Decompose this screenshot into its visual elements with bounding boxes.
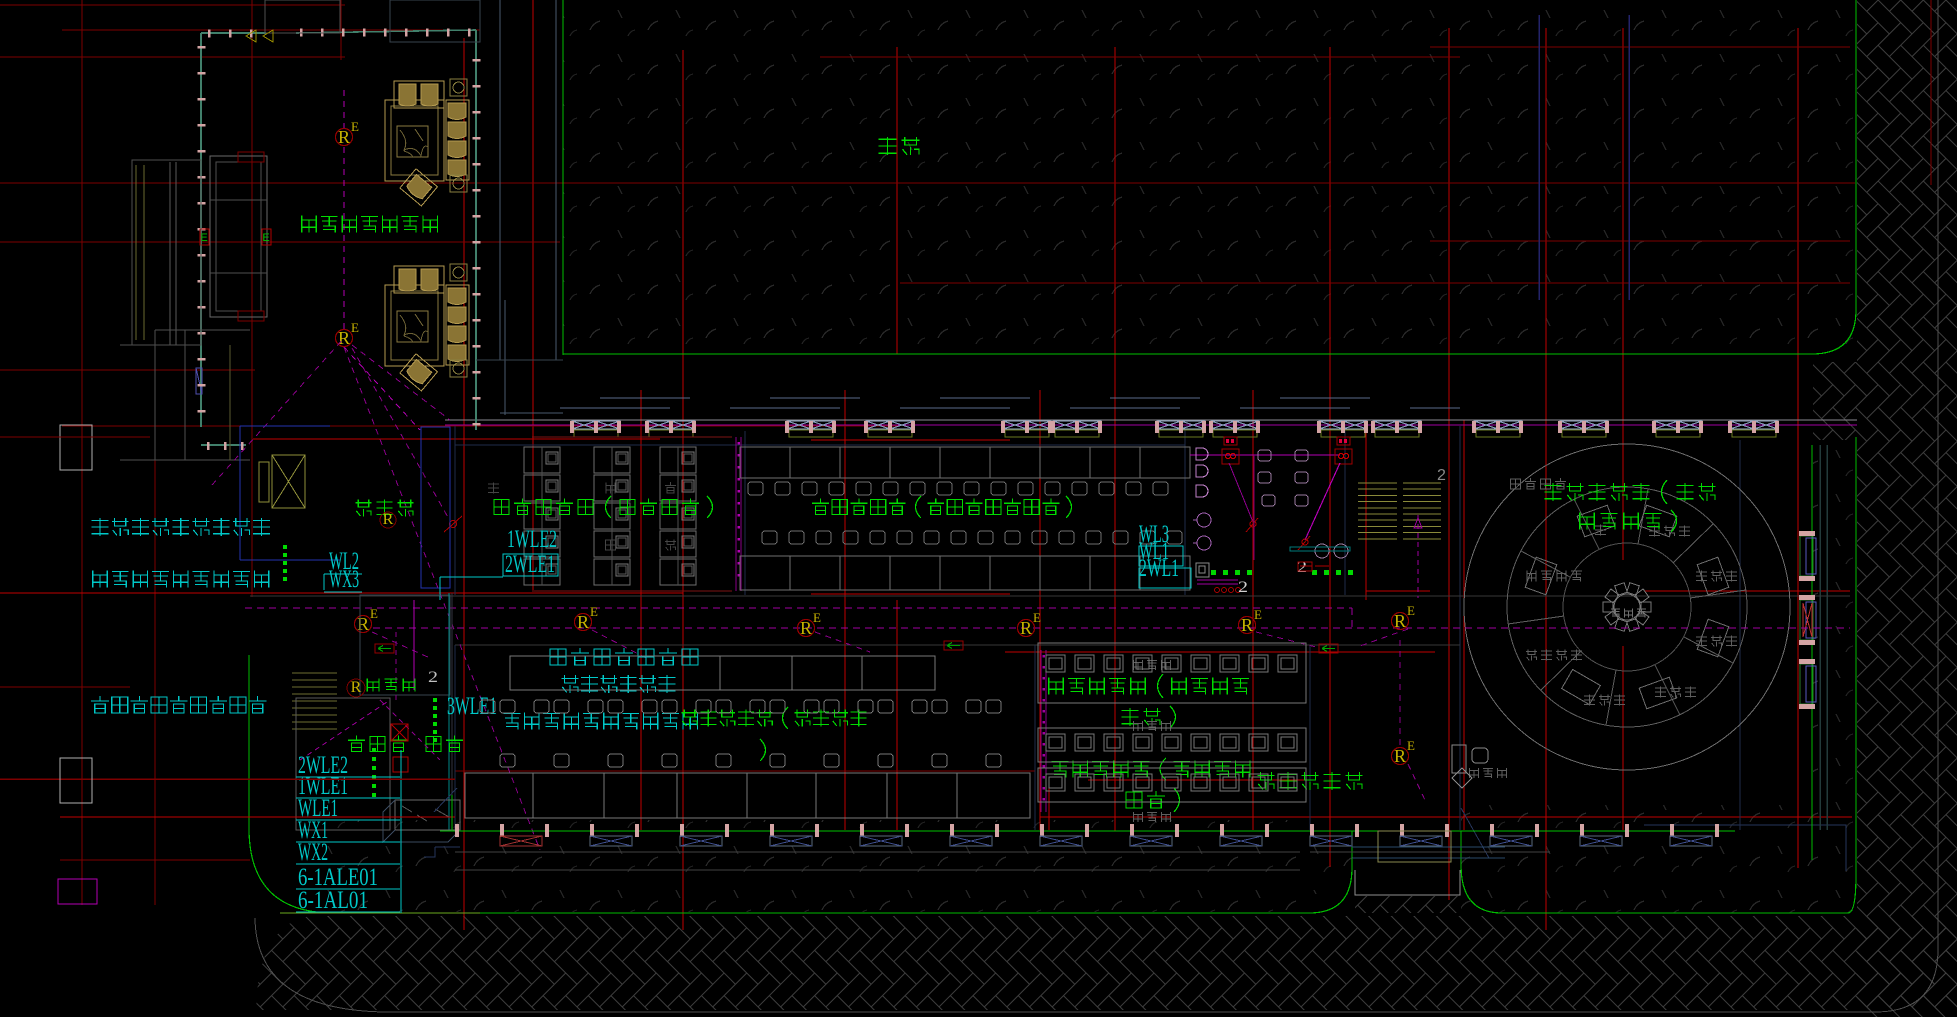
svg-text:E: E [370, 606, 378, 621]
svg-text:2: 2 [428, 669, 438, 686]
svg-text:R: R [351, 679, 362, 696]
svg-text:R: R [338, 127, 350, 147]
svg-text:R: R [1394, 611, 1406, 631]
svg-text:WX2: WX2 [298, 839, 328, 866]
svg-text:6-1AL01: 6-1AL01 [298, 887, 368, 914]
svg-text:R: R [577, 612, 589, 632]
svg-text:E: E [1033, 610, 1041, 625]
svg-text:3WLE1: 3WLE1 [447, 693, 497, 720]
svg-text:E: E [590, 604, 598, 619]
svg-text:2: 2 [1238, 579, 1248, 596]
svg-text:E: E [1407, 603, 1415, 618]
svg-text:E: E [351, 119, 359, 134]
svg-text:E: E [351, 320, 359, 335]
svg-text:1WLE2: 1WLE2 [507, 526, 557, 553]
svg-text:E: E [813, 610, 821, 625]
svg-text:E: E [1254, 607, 1262, 622]
svg-text:R: R [800, 618, 812, 638]
svg-text:R: R [1020, 618, 1032, 638]
svg-text:R: R [357, 614, 369, 634]
svg-text:2: 2 [1437, 467, 1446, 484]
svg-text:2WLE1: 2WLE1 [505, 551, 555, 578]
svg-text:E: E [1407, 738, 1415, 753]
svg-text:WX3: WX3 [329, 566, 359, 593]
svg-text:R: R [1241, 615, 1253, 635]
svg-text:E: E [262, 232, 269, 244]
svg-text:R: R [1394, 746, 1406, 766]
